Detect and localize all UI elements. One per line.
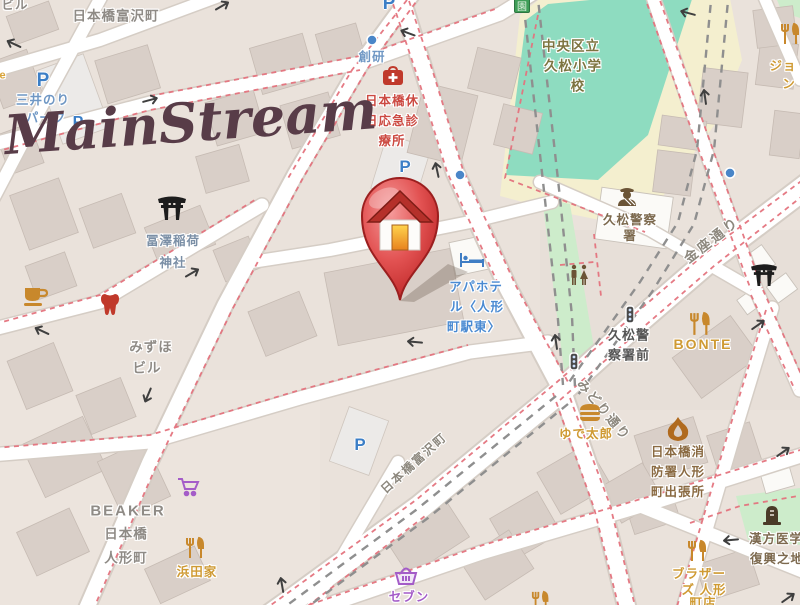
location-marker[interactable] (352, 170, 448, 304)
map-canvas[interactable]: ビル 日本橋富沢町 e P P P P P 三井のり パーク 創研 日本橋休 日… (0, 0, 800, 605)
kindergarten-icon: 園 (514, 0, 530, 13)
